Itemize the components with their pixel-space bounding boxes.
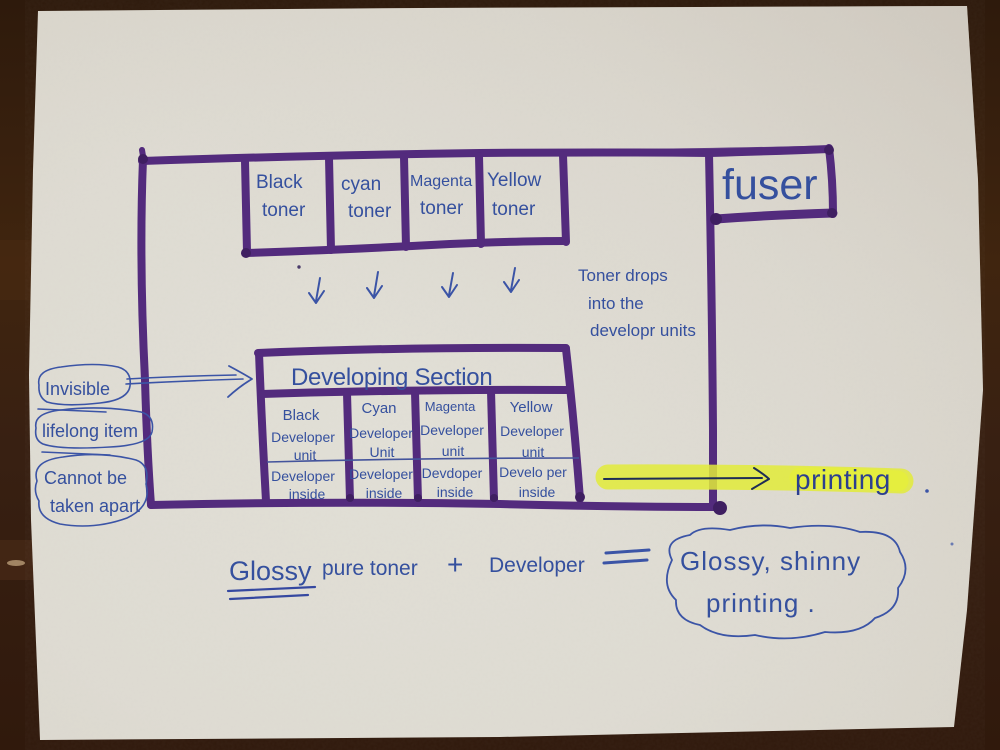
svg-text:Developer: Developer (500, 423, 564, 439)
svg-text:developr units: developr units (590, 321, 696, 340)
svg-text:Magenta: Magenta (425, 399, 476, 414)
svg-text:inside: inside (437, 484, 474, 500)
svg-text:unit: unit (294, 447, 317, 463)
svg-text:Magenta: Magenta (410, 173, 472, 190)
svg-text:Developer: Developer (349, 425, 413, 441)
svg-text:Cannot be: Cannot be (44, 468, 127, 488)
svg-text:Invisible: Invisible (45, 379, 110, 399)
svg-text:Developer: Developer (420, 422, 484, 438)
svg-text:Develo per: Develo per (499, 464, 567, 480)
svg-text:Developer: Developer (349, 466, 413, 482)
svg-text:toner: toner (492, 199, 536, 220)
svg-text:inside: inside (289, 486, 326, 502)
svg-text:inside: inside (519, 484, 556, 500)
svg-text:toner: toner (420, 198, 464, 219)
svg-text:Yellow: Yellow (487, 170, 542, 191)
svg-text:Black: Black (283, 407, 320, 424)
svg-text:unit: unit (442, 443, 465, 459)
svg-text:+: + (447, 549, 463, 580)
svg-text:toner: toner (348, 201, 392, 222)
svg-text:printing .: printing . (706, 588, 816, 618)
svg-text:toner: toner (262, 200, 306, 221)
svg-text:taken apart: taken apart (50, 496, 140, 516)
svg-text:Developer: Developer (489, 554, 585, 577)
svg-text:Unit: Unit (370, 444, 395, 460)
svg-text:printing: printing (795, 464, 891, 495)
svg-text:Yellow: Yellow (510, 399, 553, 416)
svg-text:Developing Section: Developing Section (291, 364, 492, 391)
svg-text:Glossy, shinny: Glossy, shinny (680, 546, 861, 576)
svg-text:Developer: Developer (271, 468, 335, 484)
svg-text:pure toner: pure toner (322, 557, 418, 580)
svg-text:Black: Black (256, 172, 303, 193)
svg-text:Developer: Developer (271, 429, 335, 445)
svg-text:unit: unit (522, 444, 545, 460)
svg-text:fuser: fuser (722, 161, 818, 209)
svg-text:Toner drops: Toner drops (578, 266, 668, 285)
svg-text:into the: into the (588, 294, 644, 313)
svg-text:inside: inside (366, 485, 403, 501)
svg-text:Cyan: Cyan (361, 400, 396, 417)
svg-text:Devdoper: Devdoper (422, 465, 483, 481)
svg-text:Glossy: Glossy (229, 556, 312, 586)
svg-text:cyan: cyan (341, 174, 381, 195)
svg-text:lifelong item: lifelong item (42, 421, 138, 441)
